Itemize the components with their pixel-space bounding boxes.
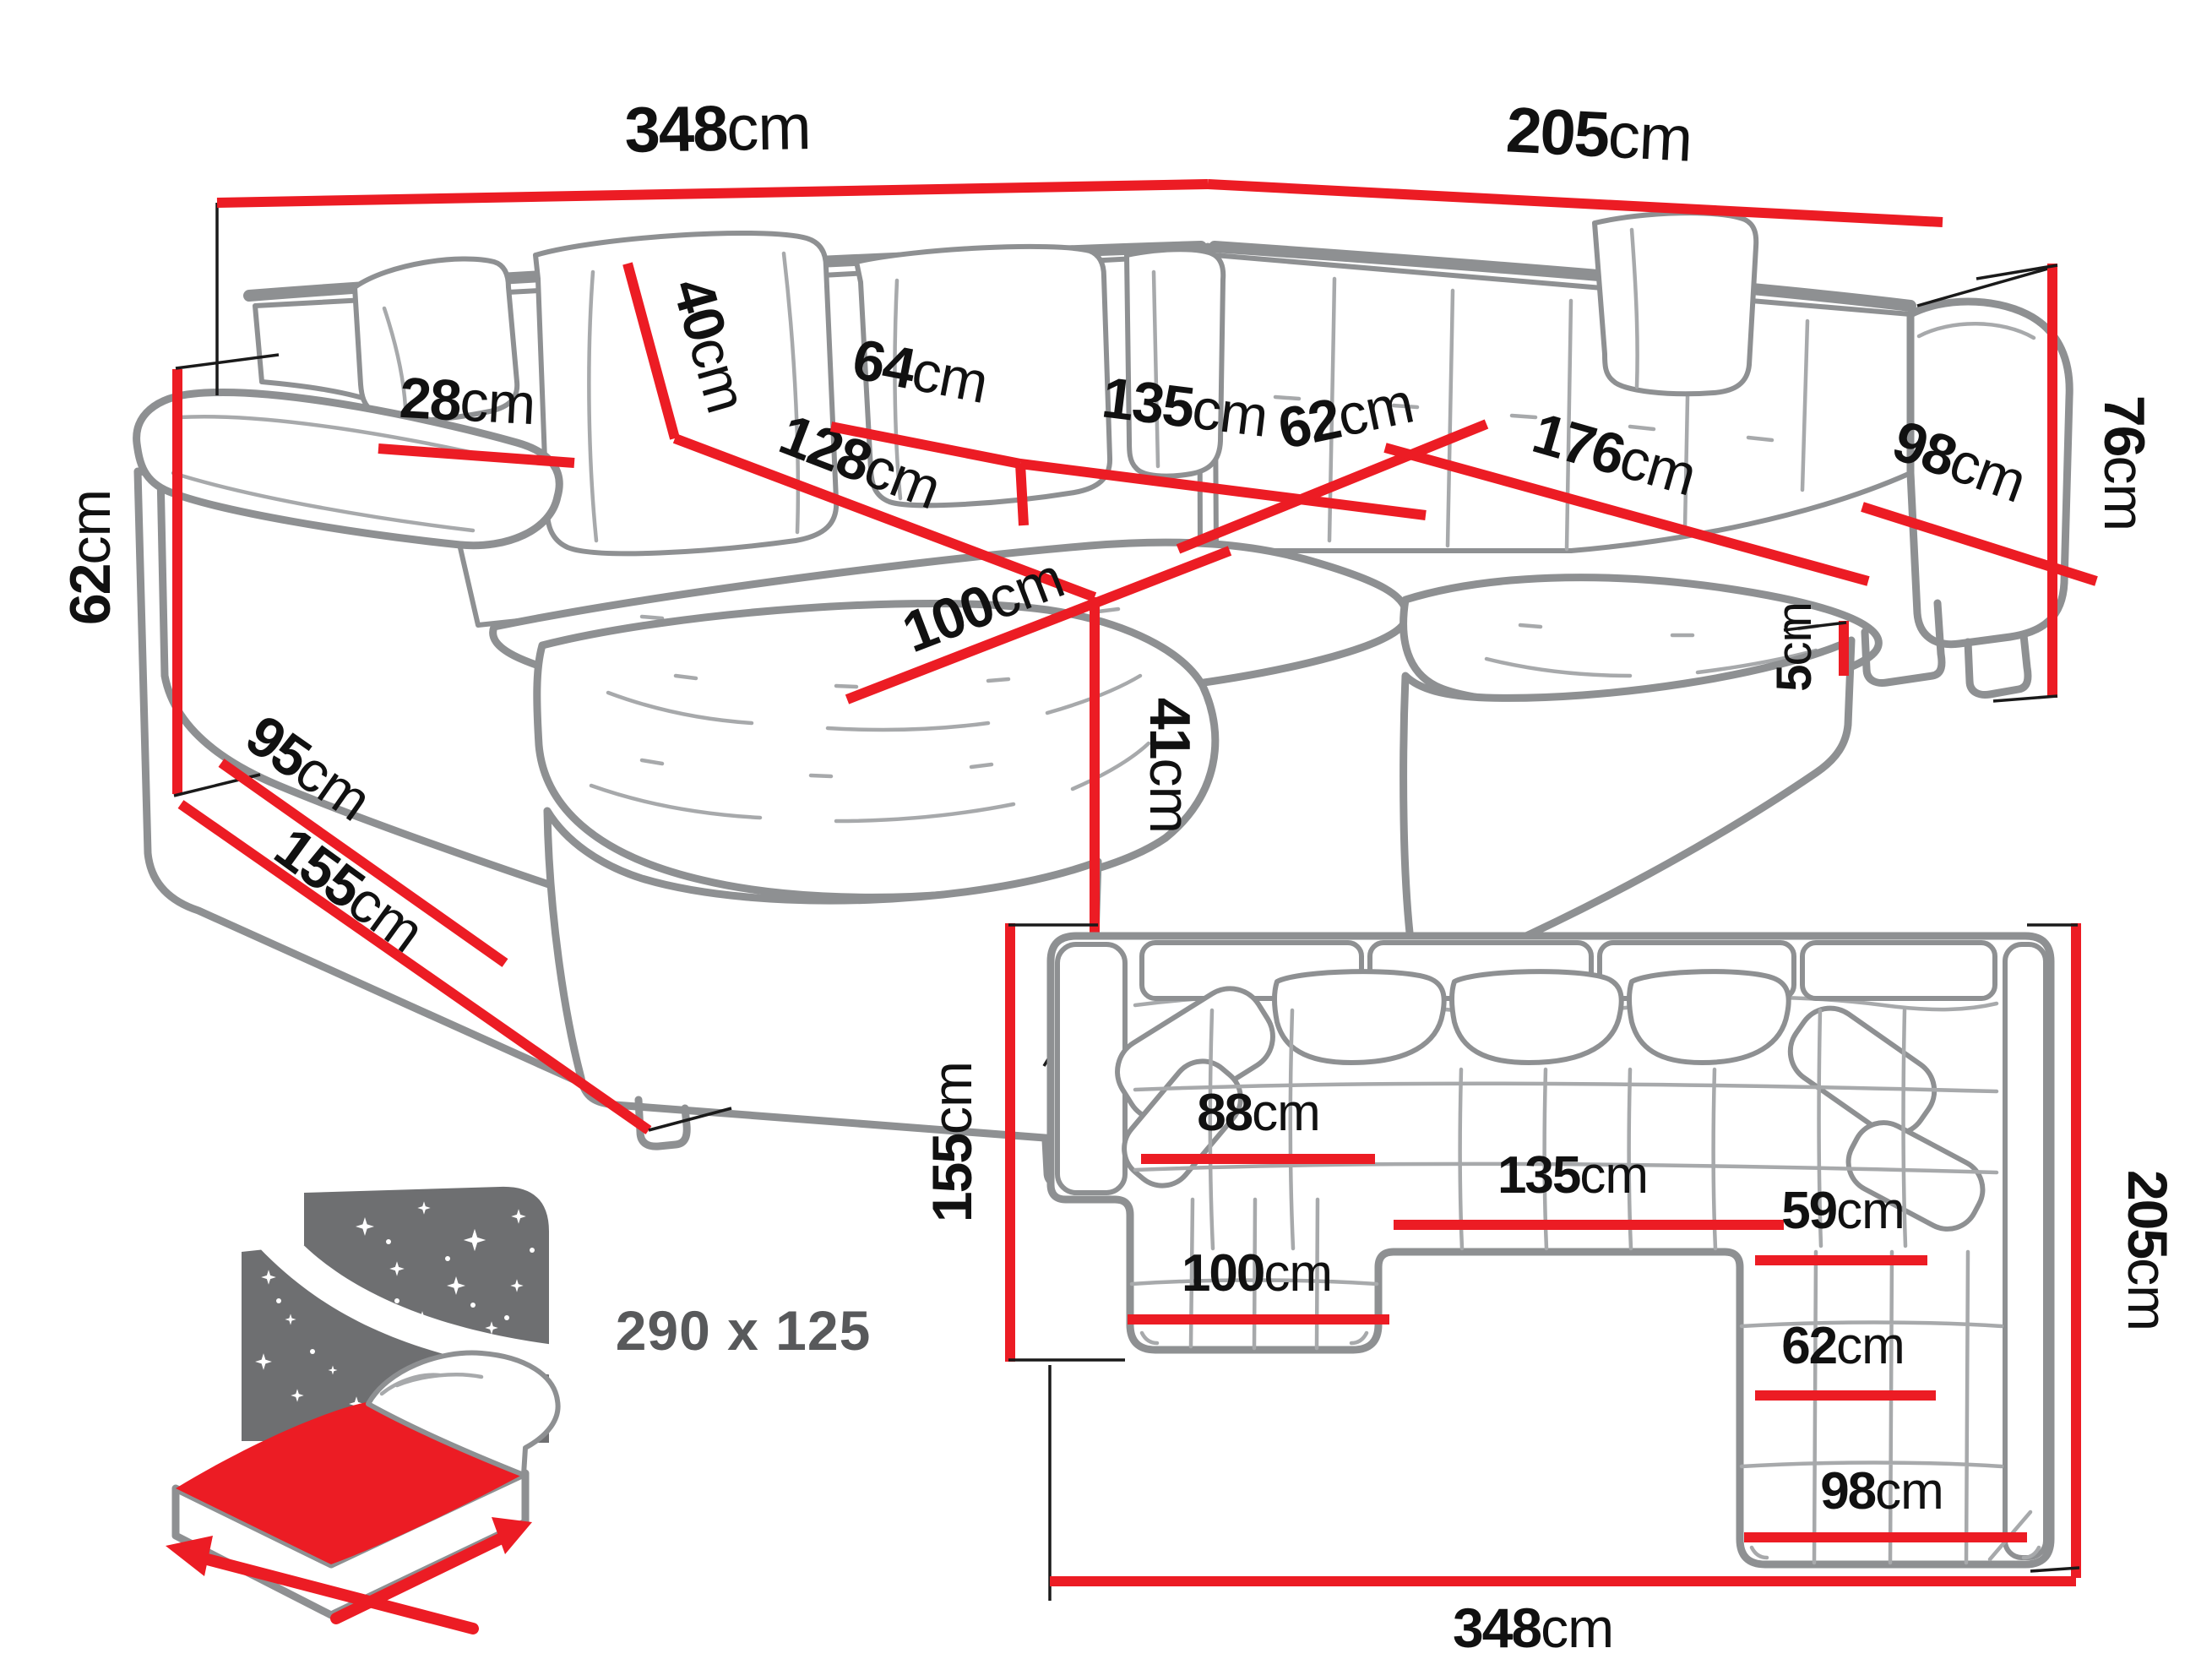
bed-icon (166, 1187, 558, 1629)
dim-right-back-width-label: 205cm (1504, 94, 1693, 175)
left-armrest (137, 392, 581, 1083)
dim-leg-height-label: 5cm (1767, 602, 1822, 692)
plan-dim-left-depth-label: 155cm (921, 1062, 983, 1222)
diagram-canvas: 348cm 205cm 76cm 62cm 95cm 155cm (0, 0, 2212, 1659)
dim-backrest-height-label: 76cm (2092, 395, 2156, 530)
plan-dim-total-width-label: 348cm (1453, 1596, 1613, 1659)
dim-armrest-height-label: 62cm (58, 490, 122, 625)
dim-armrest-width-label: 28cm (398, 366, 536, 437)
dim-back-width-label: 348cm (624, 91, 812, 166)
plan-dim-chaise-seat-width-label: 88cm (1197, 1084, 1320, 1142)
plan-dim-right-end-width-label: 98cm (1820, 1462, 1943, 1520)
plan-dim-right-seat-width-label: 62cm (1781, 1317, 1905, 1375)
plan-dim-chaise-width-label: 100cm (1182, 1244, 1332, 1303)
plan-dim-total-width: 348cm (1050, 1581, 2076, 1659)
chaise-cushion (537, 603, 1215, 897)
sofa-dimension-sheet: 348cm 205cm 76cm 62cm 95cm 155cm (0, 0, 2212, 1659)
plan-dim-right-depth-label: 205cm (2117, 1170, 2179, 1330)
bed-size-label: 290 x 125 (616, 1299, 872, 1362)
plan-dim-corner-seat-width-label: 59cm (1781, 1182, 1905, 1240)
dim-seat-height-label: 41cm (1138, 698, 1202, 833)
plan-dim-middle-seat-width-label: 135cm (1497, 1146, 1648, 1205)
